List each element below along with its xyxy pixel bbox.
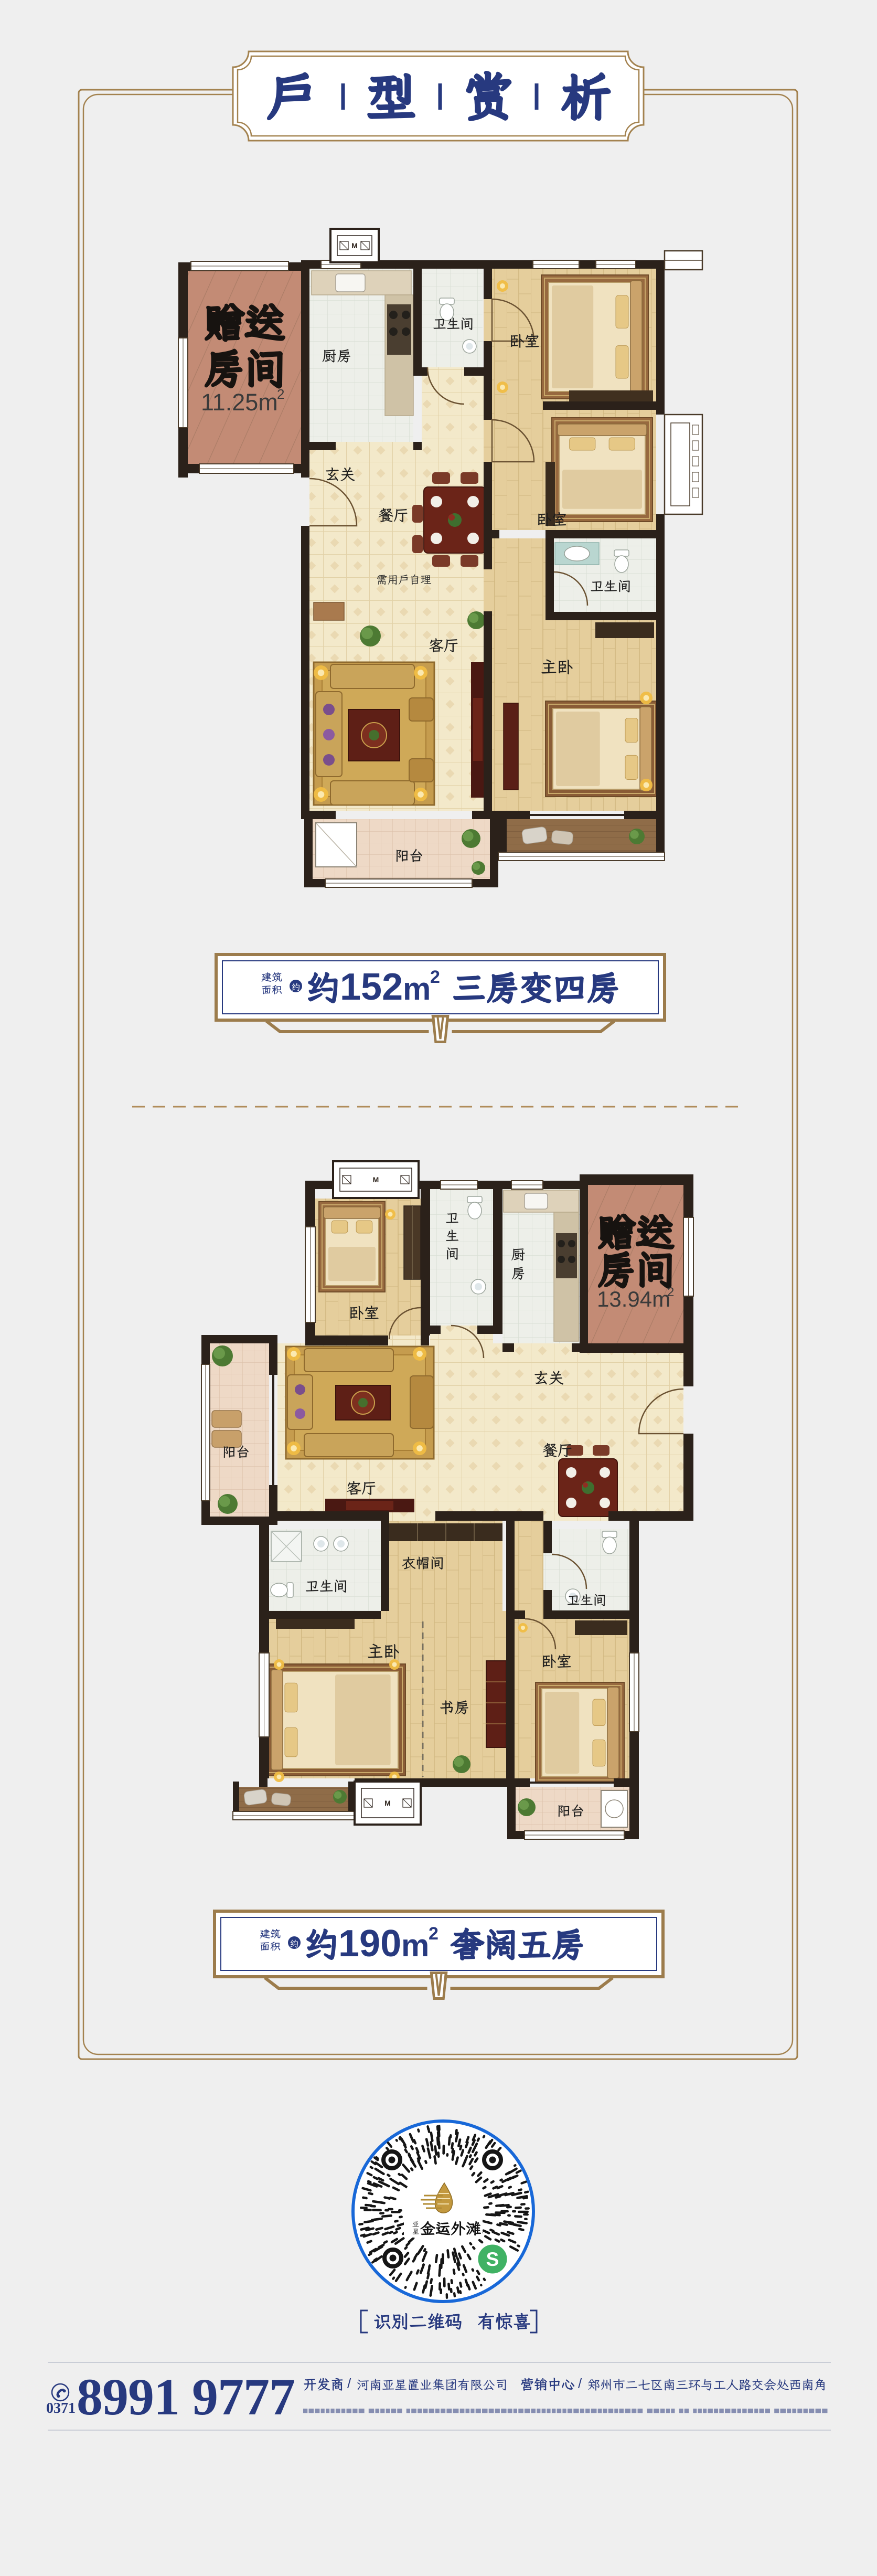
svg-text:2: 2 (430, 967, 440, 987)
svg-text:/: / (578, 2376, 582, 2391)
svg-text:M: M (384, 1799, 391, 1807)
svg-text:0371: 0371 (46, 2400, 76, 2416)
svg-text:8991 9777: 8991 9777 (77, 2368, 295, 2426)
svg-text:m: m (401, 1928, 429, 1963)
svg-text:/: / (347, 2376, 351, 2391)
svg-text:2: 2 (667, 1285, 674, 1299)
svg-text:2: 2 (429, 1924, 438, 1944)
svg-text:M: M (351, 241, 358, 250)
svg-text:13.94m: 13.94m (597, 1287, 670, 1311)
svg-text:11.25m: 11.25m (201, 389, 278, 416)
svg-text:190: 190 (338, 1923, 401, 1965)
svg-text:152: 152 (340, 966, 403, 1008)
svg-text:M: M (373, 1175, 379, 1184)
svg-text:m: m (403, 971, 431, 1006)
svg-text:2: 2 (277, 386, 284, 402)
svg-text:S: S (486, 2249, 499, 2270)
